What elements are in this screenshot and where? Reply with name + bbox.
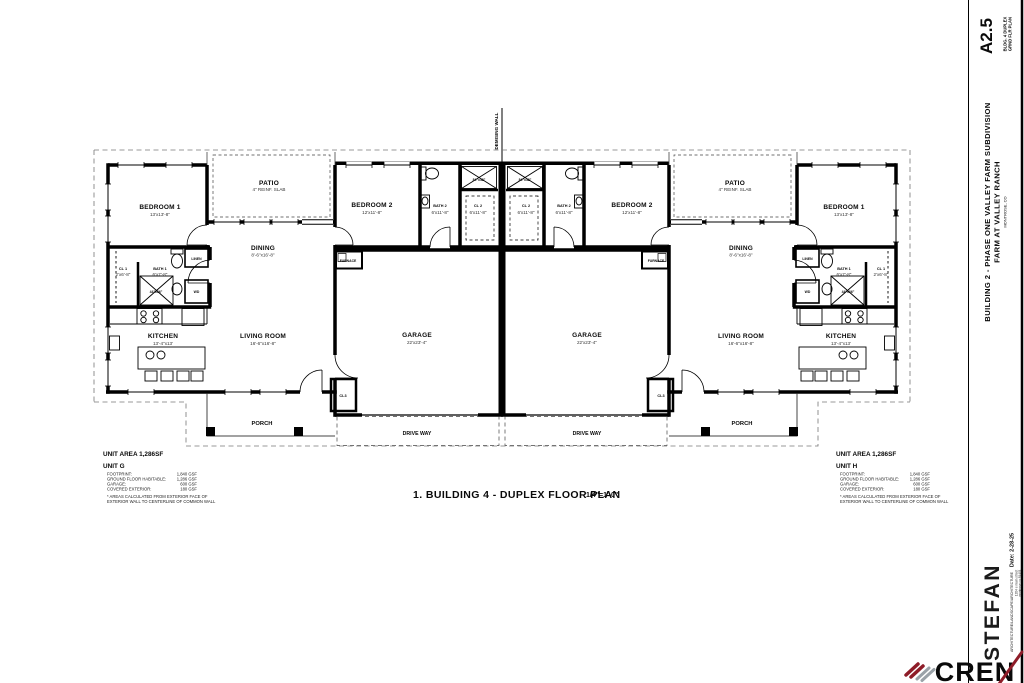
room-dim-kitchen: 13'-4"x13' — [831, 341, 851, 346]
room-label-bedroom1: BEDROOM 1 — [823, 204, 864, 211]
unit-g-note2: EXTERIOR WALL TO CENTERLINE OF COMMON WA… — [107, 499, 216, 504]
room-label-kitchen: KITCHEN — [826, 333, 856, 340]
room-dim-garage: 22'x23'-4" — [577, 340, 597, 345]
room-dim-cl1: 2'x6'-8" — [874, 272, 889, 277]
label-shower-small: 44"x36" — [842, 290, 855, 294]
room-label-dining: DINING — [251, 245, 275, 252]
unit-h-plan-geometry — [501, 152, 899, 446]
unit-g-area-block: UNIT AREA 1,286SF UNIT G FOOTPRINT: 1,84… — [103, 451, 216, 504]
unit-h-row4-label: COVERED EXTERIOR: — [840, 487, 884, 492]
room-label-cl2: CL 2 — [522, 204, 530, 208]
room-label-living: LIVING ROOM — [240, 333, 286, 340]
room-label-garage: GARAGE — [572, 332, 602, 339]
label-cl3: CL3 — [657, 394, 664, 398]
room-dim-bath2: 6'x11'-8" — [431, 210, 448, 215]
unit-h-area-title: UNIT AREA 1,286SF — [836, 451, 896, 458]
room-dim-bedroom1: 13'x13'-8" — [150, 212, 170, 217]
sheet-number: A2.5 — [977, 18, 996, 54]
label-furnace: FURNACE — [648, 259, 665, 263]
unit-h-row4-value: 180 GSF — [913, 487, 930, 492]
label-shower-large: 84"x48" — [473, 178, 486, 182]
drawing-scale: 1/4"=1'-0" — [586, 492, 618, 499]
label-shower-small: 44"x36" — [150, 290, 163, 294]
unit-g-row4-value: 180 GSF — [180, 487, 197, 492]
room-dim-bath1: 6'x7'-8" — [153, 272, 168, 277]
room-label-bath2: BATH 2 — [433, 204, 446, 208]
room-label-living: LIVING ROOM — [718, 333, 764, 340]
firm-name: STEFAN — [981, 563, 1004, 661]
room-label-cl2: CL 2 — [474, 204, 482, 208]
room-label-kitchen: KITCHEN — [148, 333, 178, 340]
room-dim-cl2: 6'x11'-8" — [469, 210, 486, 215]
room-label-bedroom2: BEDROOM 2 — [611, 202, 652, 209]
room-label-bath2: BATH 2 — [557, 204, 570, 208]
room-dim-cl2: 6'x11'-8" — [517, 210, 534, 215]
room-label-garage: GARAGE — [402, 332, 432, 339]
unit-g-plan-geometry — [105, 152, 503, 446]
room-note-patio: 4" REINF. SLAB — [252, 187, 285, 192]
room-label-dining: DINING — [729, 245, 753, 252]
label-linen: LINEN — [191, 257, 202, 261]
label-wd: WD — [194, 290, 200, 294]
unit-g-area-title: UNIT AREA 1,286SF — [103, 451, 163, 458]
label-porch: PORCH — [732, 421, 753, 427]
room-label-bedroom2: BEDROOM 2 — [351, 202, 392, 209]
room-label-cl1: CL 1 — [877, 267, 885, 271]
label-cl3: CL3 — [339, 394, 346, 398]
label-porch: PORCH — [252, 421, 273, 427]
room-label-patio: PATIO — [259, 180, 279, 187]
room-dim-bedroom1: 13'x13'-8" — [834, 212, 854, 217]
unit-g-name: UNIT G — [103, 463, 125, 470]
room-dim-living: 16'-6"x16'-8" — [728, 341, 754, 346]
label-driveway: DRIVE WAY — [403, 431, 432, 437]
firm-address2: montrose co 81401 — [1018, 569, 1022, 597]
drawing-sheet: BEDROOM 1 13'x13'-8" PATIO 4" REINF. SLA… — [0, 0, 1024, 683]
title-block: A2.5 BLDG. 4 DUPLEX GRND FLR PLAN BUILDI… — [906, 0, 1022, 683]
label-wd: WD — [805, 290, 811, 294]
unit-h-area-block: UNIT AREA 1,286SF UNIT H FOOTPRINT: 1,84… — [836, 451, 949, 504]
label-linen: LINEN — [802, 257, 813, 261]
room-dim-bath1: 6'x7'-8" — [837, 272, 852, 277]
sheet-number-sub2: GRND FLR PLAN — [1008, 17, 1013, 51]
floor-plan-svg: BEDROOM 1 13'x13'-8" PATIO 4" REINF. SLA… — [0, 0, 1024, 683]
firm-tagline: ARCHITECTURE/LANDSCAPE/ARCHITECTURE — [1010, 571, 1014, 652]
room-dim-dining: 8'-6"x16'-8" — [251, 253, 275, 258]
unit-h-note2: EXTERIOR WALL TO CENTERLINE OF COMMON WA… — [840, 499, 949, 504]
room-dim-bath2: 6'x11'-8" — [555, 210, 572, 215]
room-dim-bedroom2: 12'x11'-8" — [622, 210, 642, 215]
project-title-line2: FARM AT VALLEY RANCH — [993, 161, 1002, 263]
unit-g-row4-label: COVERED EXTERIOR: — [107, 487, 151, 492]
unit-h-name: UNIT H — [836, 463, 858, 470]
project-location: MONTROSE, CO — [1003, 196, 1008, 227]
label-shower-large: 84"x48" — [519, 178, 532, 182]
room-dim-dining: 8'-6"x16'-8" — [729, 253, 753, 258]
room-dim-kitchen: 13'-4"x13' — [153, 341, 173, 346]
floor-plan — [94, 108, 910, 446]
room-dim-garage: 22'x23'-4" — [407, 340, 427, 345]
room-label-bath1: BATH 1 — [837, 267, 850, 271]
room-dim-cl1: 2'x6'-8" — [116, 272, 131, 277]
drawing-title: 1. BUILDING 4 - DUPLEX FLOOR PLAN 1/4"=1… — [413, 489, 620, 501]
room-label-cl1: CL 1 — [119, 267, 127, 271]
cren-logo: CREN — [906, 652, 1022, 683]
room-dim-living: 16'-6"x16'-8" — [250, 341, 276, 346]
room-label-bath1: BATH 1 — [153, 267, 166, 271]
label-driveway: DRIVE WAY — [573, 431, 602, 437]
room-note-patio: 4" REINF. SLAB — [718, 187, 751, 192]
project-title-line1: BUILDING 2 - PHASE ONE VALLEY FARM SUBDI… — [983, 102, 992, 321]
label-furnace: FURNACE — [340, 259, 357, 263]
sheet-date: Date: 2-28-25 — [1010, 533, 1016, 567]
firm-logo: STEFAN ARCHITECTURE/LANDSCAPE/ARCHITECTU… — [981, 563, 1022, 661]
room-label-bedroom1: BEDROOM 1 — [139, 204, 180, 211]
demising-wall-label: DEMISING WALL — [494, 112, 499, 149]
room-dim-bedroom2: 12'x11'-8" — [362, 210, 382, 215]
room-label-patio: PATIO — [725, 180, 745, 187]
